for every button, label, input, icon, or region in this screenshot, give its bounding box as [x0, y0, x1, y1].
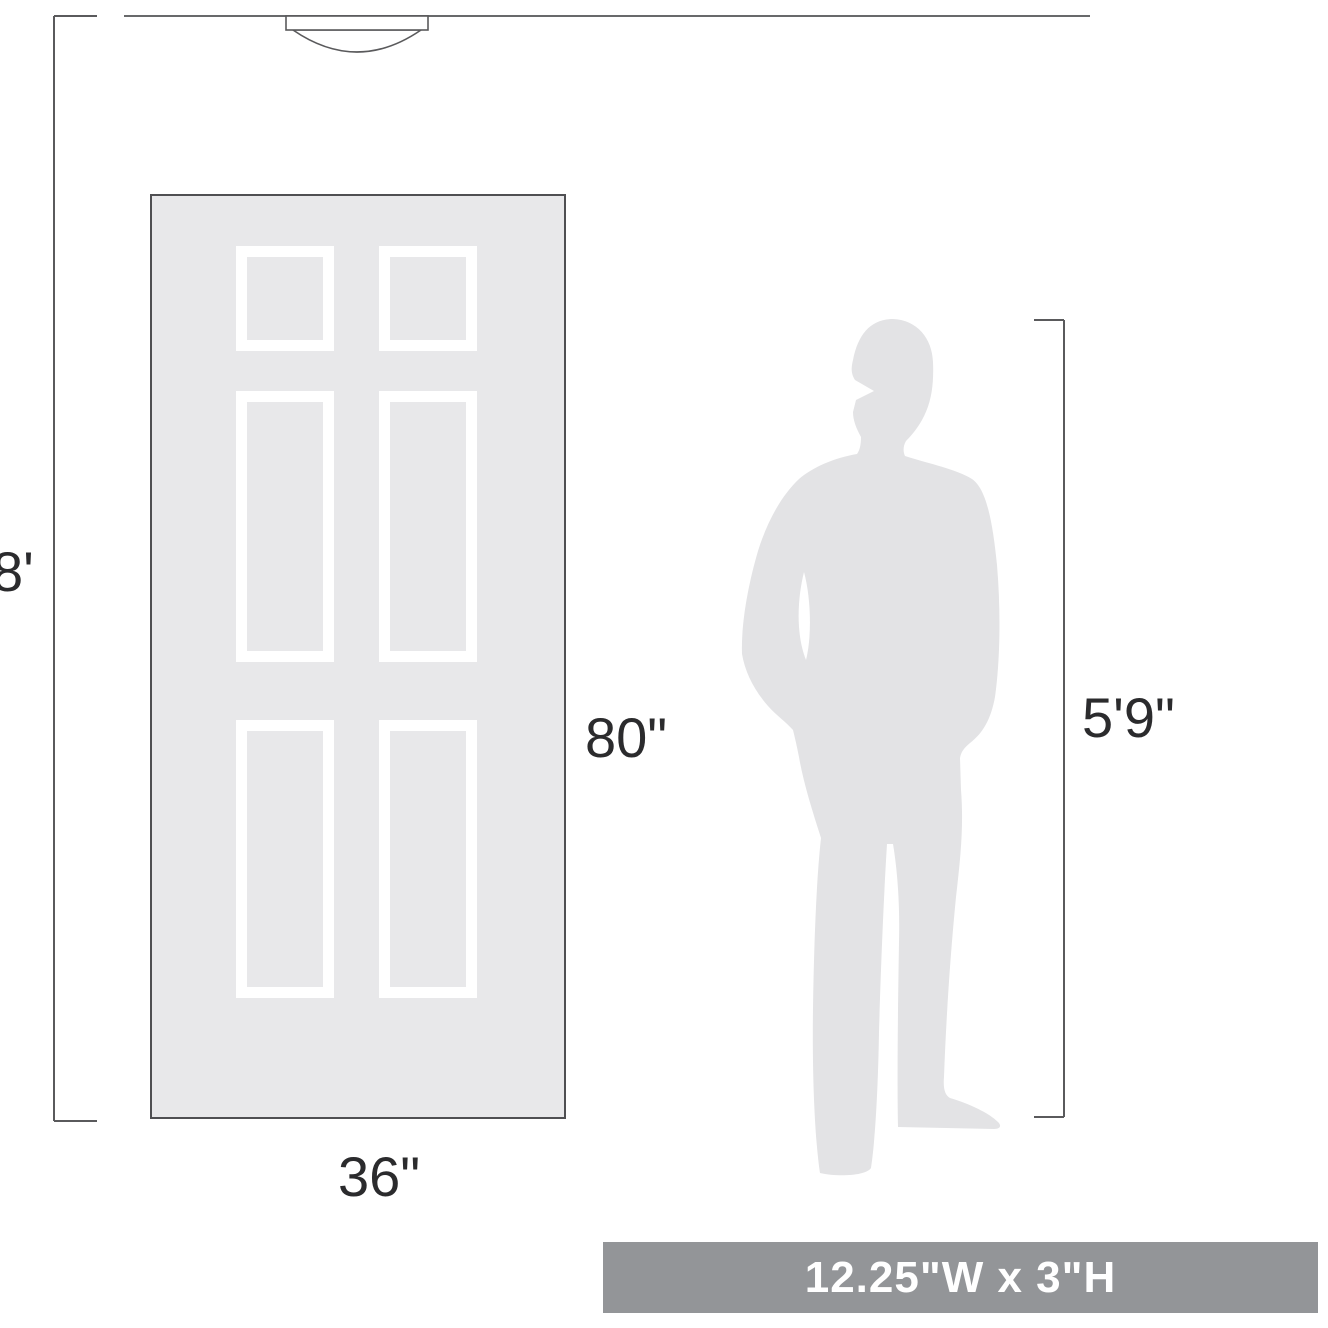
ceiling-height-label: 8' — [0, 541, 34, 603]
door-panel — [236, 391, 334, 662]
person-height-label: 5'9" — [1082, 687, 1175, 749]
door-width-label: 36" — [338, 1146, 420, 1208]
fixture-shade — [293, 30, 421, 52]
door-height-label: 80" — [585, 707, 667, 769]
door-panel — [379, 720, 477, 998]
scale-diagram: 8' 80" 36" 5'9" 12.25"W x 3"H — [0, 0, 1328, 1328]
door-panel — [379, 246, 477, 351]
door — [150, 194, 566, 1119]
person-silhouette — [742, 319, 1000, 1175]
door-panel — [236, 720, 334, 998]
door-panel — [379, 391, 477, 662]
flush-mount-fixture — [286, 16, 428, 52]
ceiling-height-bracket — [54, 16, 97, 1121]
door-panel — [236, 246, 334, 351]
fixture-size-label: 12.25"W x 3"H — [603, 1242, 1318, 1313]
person-body — [742, 319, 1000, 1175]
person-height-bracket — [1034, 320, 1064, 1117]
fixture-canopy — [286, 16, 428, 30]
fixture-size-badge: 12.25"W x 3"H — [603, 1242, 1318, 1313]
